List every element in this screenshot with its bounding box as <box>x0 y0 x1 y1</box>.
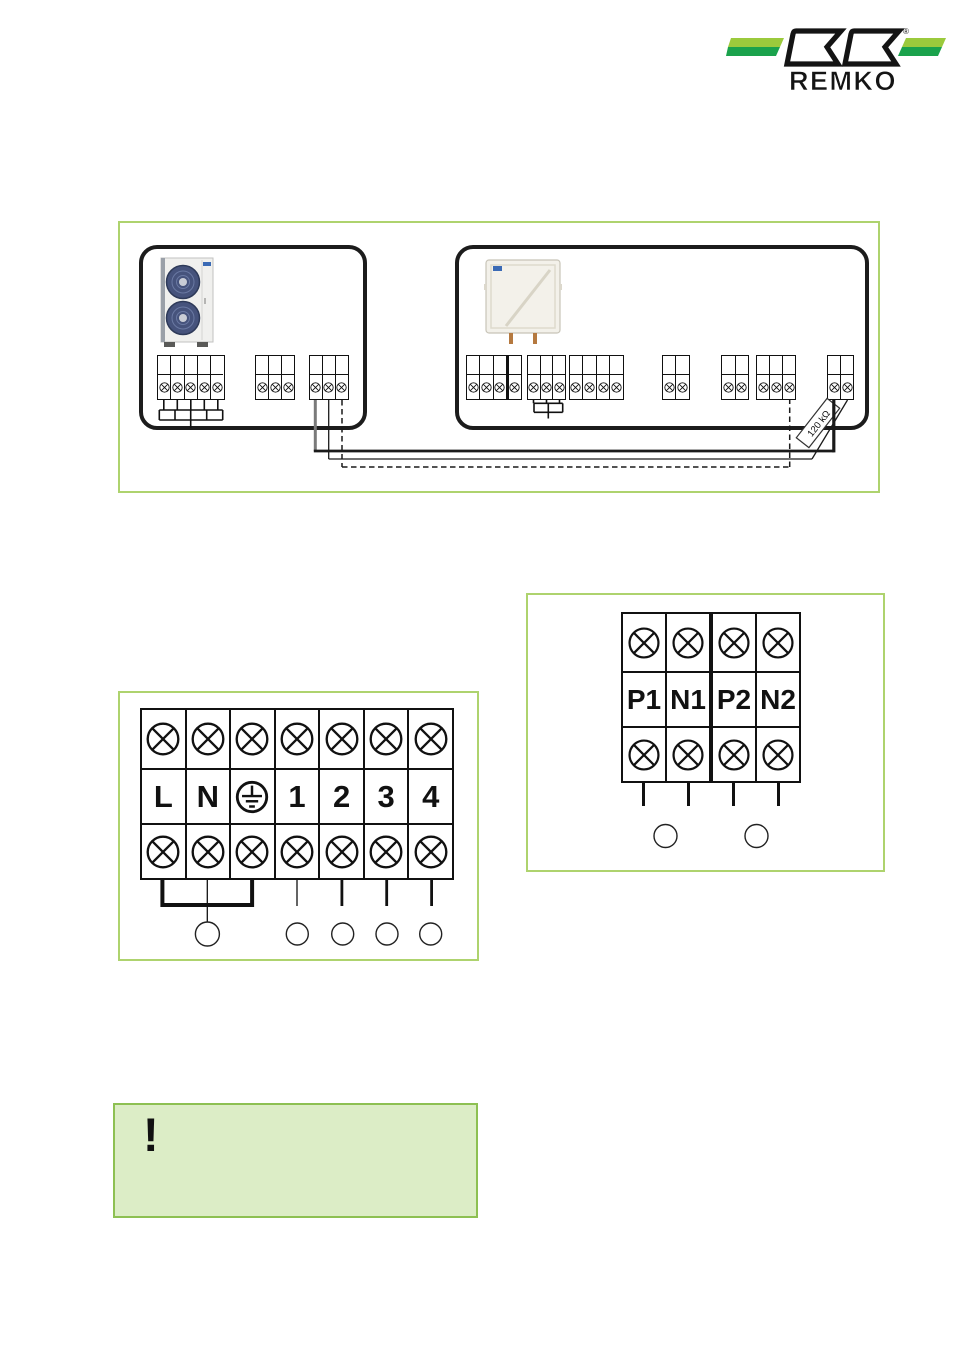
terminal-cell <box>335 356 348 399</box>
screw-terminal-icon <box>413 721 449 757</box>
terminal-screw <box>158 375 170 399</box>
screw-terminal-icon <box>324 721 360 757</box>
terminal-cell <box>735 356 748 399</box>
terminal-cell <box>769 356 782 399</box>
terminal-screw <box>610 375 623 399</box>
terminal-top <box>256 356 268 375</box>
comm-terminal-diagram-box: P1N1P2N2 <box>526 593 885 872</box>
screw-terminal-icon <box>528 382 539 393</box>
screw-cell <box>363 710 408 768</box>
terminal-top <box>783 356 795 375</box>
terminal-screw <box>663 375 675 399</box>
terminal-screw <box>783 375 795 399</box>
callout-circle <box>286 923 308 945</box>
terminal-screw <box>282 375 294 399</box>
screw-cell <box>709 614 755 671</box>
screw-terminal-icon <box>627 738 661 772</box>
terminal-screw <box>198 375 210 399</box>
screw-terminal-icon <box>283 382 294 393</box>
terminal-screw <box>841 375 853 399</box>
terminal-top <box>269 356 281 375</box>
screw-terminal-icon <box>717 738 751 772</box>
screw-terminal-icon <box>310 382 321 393</box>
terminal-screw <box>509 375 521 399</box>
screw-terminal-icon <box>323 382 334 393</box>
unit-brand-label <box>493 266 502 271</box>
screw-terminal-icon <box>842 382 853 393</box>
callout-circle <box>332 923 354 945</box>
indoor-terminal-block-7 <box>827 355 854 400</box>
ground-comb-outdoor <box>157 400 227 430</box>
terminal-top <box>185 356 197 375</box>
label-row: P1N1P2N2 <box>623 671 799 726</box>
terminal-cell <box>322 356 335 399</box>
indoor-terminal-block-5 <box>721 355 748 400</box>
terminal-label: N <box>185 770 230 823</box>
terminal-cell <box>310 356 322 399</box>
callout-circle <box>376 923 398 945</box>
screw-cell <box>185 825 230 878</box>
screw-terminal-icon <box>723 382 734 393</box>
screw-cell <box>142 825 185 878</box>
logo-stripe-right-dark <box>898 47 942 56</box>
screw-cell <box>755 728 799 781</box>
terminal-cell <box>540 356 553 399</box>
terminal-cell <box>506 356 521 399</box>
screw-terminal-icon <box>368 721 404 757</box>
terminal-screw <box>211 375 223 399</box>
outdoor-terminal-block-1 <box>157 355 225 400</box>
screw-terminal-icon <box>270 382 281 393</box>
terminal-cell <box>467 356 479 399</box>
unit-brand-label <box>203 262 211 266</box>
terminal-top <box>828 356 840 375</box>
terminal-screw <box>570 375 583 399</box>
terminal-label: 4 <box>407 770 452 823</box>
terminal-screw <box>480 375 492 399</box>
indoor-terminal-block-6 <box>756 355 796 400</box>
screw-cell <box>229 825 274 878</box>
comm-terminal-strip: P1N1P2N2 <box>621 612 801 783</box>
terminal-top <box>553 356 565 375</box>
terminal-top <box>323 356 335 375</box>
callout-circle <box>745 825 768 848</box>
terminal-cell <box>268 356 281 399</box>
screw-terminal-icon <box>468 382 479 393</box>
brand-wordmark: REMKO <box>789 66 897 96</box>
terminal-screw <box>597 375 610 399</box>
terminal-top <box>171 356 183 375</box>
terminal-cell <box>528 356 540 399</box>
wiring-overview-box: 120 kΩ <box>118 221 880 493</box>
power-terminal-strip: LN 1234 <box>140 708 454 880</box>
terminal-cell <box>828 356 840 399</box>
screw-cell <box>407 825 452 878</box>
power-strip-callouts <box>140 880 454 952</box>
terminal-label: N2 <box>755 673 799 726</box>
screw-terminal-icon <box>736 382 747 393</box>
screw-terminal-icon <box>234 721 270 757</box>
callout-circle <box>654 825 677 848</box>
indoor-terminal-block-4 <box>662 355 690 400</box>
screw-cell <box>665 614 709 671</box>
screw-cell <box>665 728 709 781</box>
logo-stripe-left-light <box>728 38 784 47</box>
terminal-cell <box>582 356 596 399</box>
screw-cell <box>318 710 363 768</box>
screw-terminal-icon <box>199 382 210 393</box>
screw-cell <box>318 825 363 878</box>
terminal-screw <box>494 375 506 399</box>
screw-terminal-icon <box>671 626 705 660</box>
terminal-screw <box>722 375 734 399</box>
screw-terminal-icon <box>494 382 505 393</box>
terminal-top <box>663 356 675 375</box>
screw-cell <box>229 710 274 768</box>
indoor-terminal-block-2 <box>527 355 566 400</box>
terminal-top <box>494 356 506 375</box>
outdoor-terminal-block-3 <box>309 355 349 400</box>
screw-row-top <box>623 614 799 671</box>
screw-terminal-icon <box>554 382 565 393</box>
terminal-cell <box>158 356 170 399</box>
terminal-screw <box>541 375 553 399</box>
screw-terminal-icon <box>677 382 688 393</box>
screw-terminal-icon <box>717 626 751 660</box>
screw-row-bottom <box>623 726 799 781</box>
exclamation-icon: ! <box>143 1107 159 1162</box>
label-row: LN 1234 <box>142 768 452 823</box>
screw-terminal-icon <box>185 382 196 393</box>
screw-cell <box>623 614 665 671</box>
terminal-label: L <box>142 770 185 823</box>
terminal-cell <box>722 356 734 399</box>
terminal-cell <box>210 356 223 399</box>
terminal-cell <box>782 356 795 399</box>
screw-terminal-icon <box>324 834 360 870</box>
outdoor-unit-image <box>157 256 220 350</box>
earth-icon <box>233 778 271 816</box>
screw-terminal-icon <box>627 626 661 660</box>
terminal-cell <box>256 356 268 399</box>
terminal-cell <box>197 356 210 399</box>
terminal-top <box>736 356 748 375</box>
screw-terminal-icon <box>664 382 675 393</box>
terminal-top <box>158 356 170 375</box>
terminal-screw <box>185 375 197 399</box>
screw-terminal-icon <box>570 382 581 393</box>
terminal-top <box>528 356 540 375</box>
outdoor-terminal-block-2 <box>255 355 295 400</box>
screw-cell <box>755 614 799 671</box>
terminal-top <box>198 356 210 375</box>
screw-terminal-icon <box>671 738 705 772</box>
screw-terminal-icon <box>761 738 795 772</box>
screw-terminal-icon <box>145 834 181 870</box>
terminal-label: 3 <box>363 770 408 823</box>
terminal-cell <box>596 356 610 399</box>
screw-cell <box>407 710 452 768</box>
screw-terminal-icon <box>509 382 520 393</box>
logo-stripe-left-dark <box>726 47 780 56</box>
terminal-screw <box>757 375 769 399</box>
terminal-cell <box>184 356 197 399</box>
terminal-top <box>509 356 521 375</box>
screw-cell <box>185 710 230 768</box>
screw-terminal-icon <box>279 834 315 870</box>
terminal-screw <box>828 375 840 399</box>
screw-cell <box>274 710 319 768</box>
terminal-top <box>282 356 294 375</box>
screw-cell <box>274 825 319 878</box>
screw-terminal-icon <box>611 382 622 393</box>
power-terminal-diagram-box: LN 1234 <box>118 691 479 961</box>
callout-circle <box>195 922 219 946</box>
terminal-top <box>757 356 769 375</box>
screw-cell <box>623 728 665 781</box>
screw-terminal-icon <box>541 382 552 393</box>
comm-strip-callouts <box>621 783 801 853</box>
terminal-label: 1 <box>274 770 319 823</box>
terminal-screw <box>676 375 688 399</box>
terminal-cell <box>757 356 769 399</box>
terminal-screw <box>256 375 268 399</box>
terminal-label: P1 <box>623 673 665 726</box>
screw-terminal-icon <box>279 721 315 757</box>
screw-cell <box>142 710 185 768</box>
terminal-top <box>722 356 734 375</box>
screw-cell <box>709 728 755 781</box>
screw-terminal-icon <box>758 382 769 393</box>
terminal-screw <box>583 375 596 399</box>
terminal-top <box>676 356 688 375</box>
terminal-top <box>310 356 322 375</box>
terminal-label-earth <box>229 770 274 823</box>
logo-mark-left <box>787 31 841 64</box>
terminal-cell <box>675 356 688 399</box>
screw-row-top <box>142 710 452 768</box>
indoor-unit-image <box>484 258 562 346</box>
fan-top <box>167 266 200 299</box>
screw-cell <box>363 825 408 878</box>
terminal-screw <box>528 375 540 399</box>
manual-page: ® REMKO <box>0 0 954 1350</box>
terminal-top <box>583 356 596 375</box>
screw-terminal-icon <box>368 834 404 870</box>
screw-terminal-icon <box>145 721 181 757</box>
logo-stripe-right-light <box>902 38 946 47</box>
indoor-terminal-block-1 <box>466 355 522 400</box>
terminal-screw <box>736 375 748 399</box>
terminal-screw <box>310 375 322 399</box>
terminal-cell <box>570 356 583 399</box>
terminal-top <box>336 356 348 375</box>
terminal-top <box>770 356 782 375</box>
terminal-top <box>467 356 479 375</box>
screw-terminal-icon <box>159 382 170 393</box>
terminal-top <box>211 356 223 375</box>
remko-logo: ® REMKO <box>726 24 948 98</box>
screw-terminal-icon <box>190 834 226 870</box>
terminal-top <box>570 356 583 375</box>
screw-terminal-icon <box>761 626 795 660</box>
terminal-label: 2 <box>318 770 363 823</box>
jumper-comb-indoor <box>527 400 567 420</box>
terminal-screw <box>553 375 565 399</box>
terminal-screw <box>770 375 782 399</box>
terminal-label: N1 <box>665 673 709 726</box>
terminal-cell <box>552 356 565 399</box>
terminal-cell <box>493 356 506 399</box>
fan-bottom <box>167 302 200 335</box>
terminal-top <box>541 356 553 375</box>
terminal-cell <box>281 356 294 399</box>
terminal-top <box>841 356 853 375</box>
screw-terminal-icon <box>234 834 270 870</box>
terminal-label: P2 <box>709 673 755 726</box>
screw-terminal-icon <box>212 382 223 393</box>
terminal-top <box>597 356 610 375</box>
attention-note-box: ! <box>113 1103 478 1218</box>
screw-terminal-icon <box>598 382 609 393</box>
terminal-screw <box>171 375 183 399</box>
screw-terminal-icon <box>190 721 226 757</box>
terminal-cell <box>663 356 675 399</box>
screw-row-bottom <box>142 823 452 878</box>
terminal-top <box>480 356 492 375</box>
terminal-screw <box>467 375 479 399</box>
screw-terminal-icon <box>172 382 183 393</box>
callout-circle <box>420 923 442 945</box>
screw-terminal-icon <box>481 382 492 393</box>
screw-terminal-icon <box>257 382 268 393</box>
logo-mark-right <box>845 31 899 64</box>
terminal-cell <box>609 356 623 399</box>
terminal-screw <box>323 375 335 399</box>
terminal-cell <box>840 356 853 399</box>
terminal-top <box>610 356 623 375</box>
terminal-screw <box>269 375 281 399</box>
indoor-terminal-block-3 <box>569 355 624 400</box>
screw-terminal-icon <box>829 382 840 393</box>
screw-terminal-icon <box>784 382 795 393</box>
terminal-cell <box>479 356 492 399</box>
terminal-cell <box>170 356 183 399</box>
screw-terminal-icon <box>336 382 347 393</box>
screw-terminal-icon <box>413 834 449 870</box>
screw-terminal-icon <box>771 382 782 393</box>
terminal-screw <box>336 375 348 399</box>
registered-mark: ® <box>903 27 909 36</box>
screw-terminal-icon <box>584 382 595 393</box>
